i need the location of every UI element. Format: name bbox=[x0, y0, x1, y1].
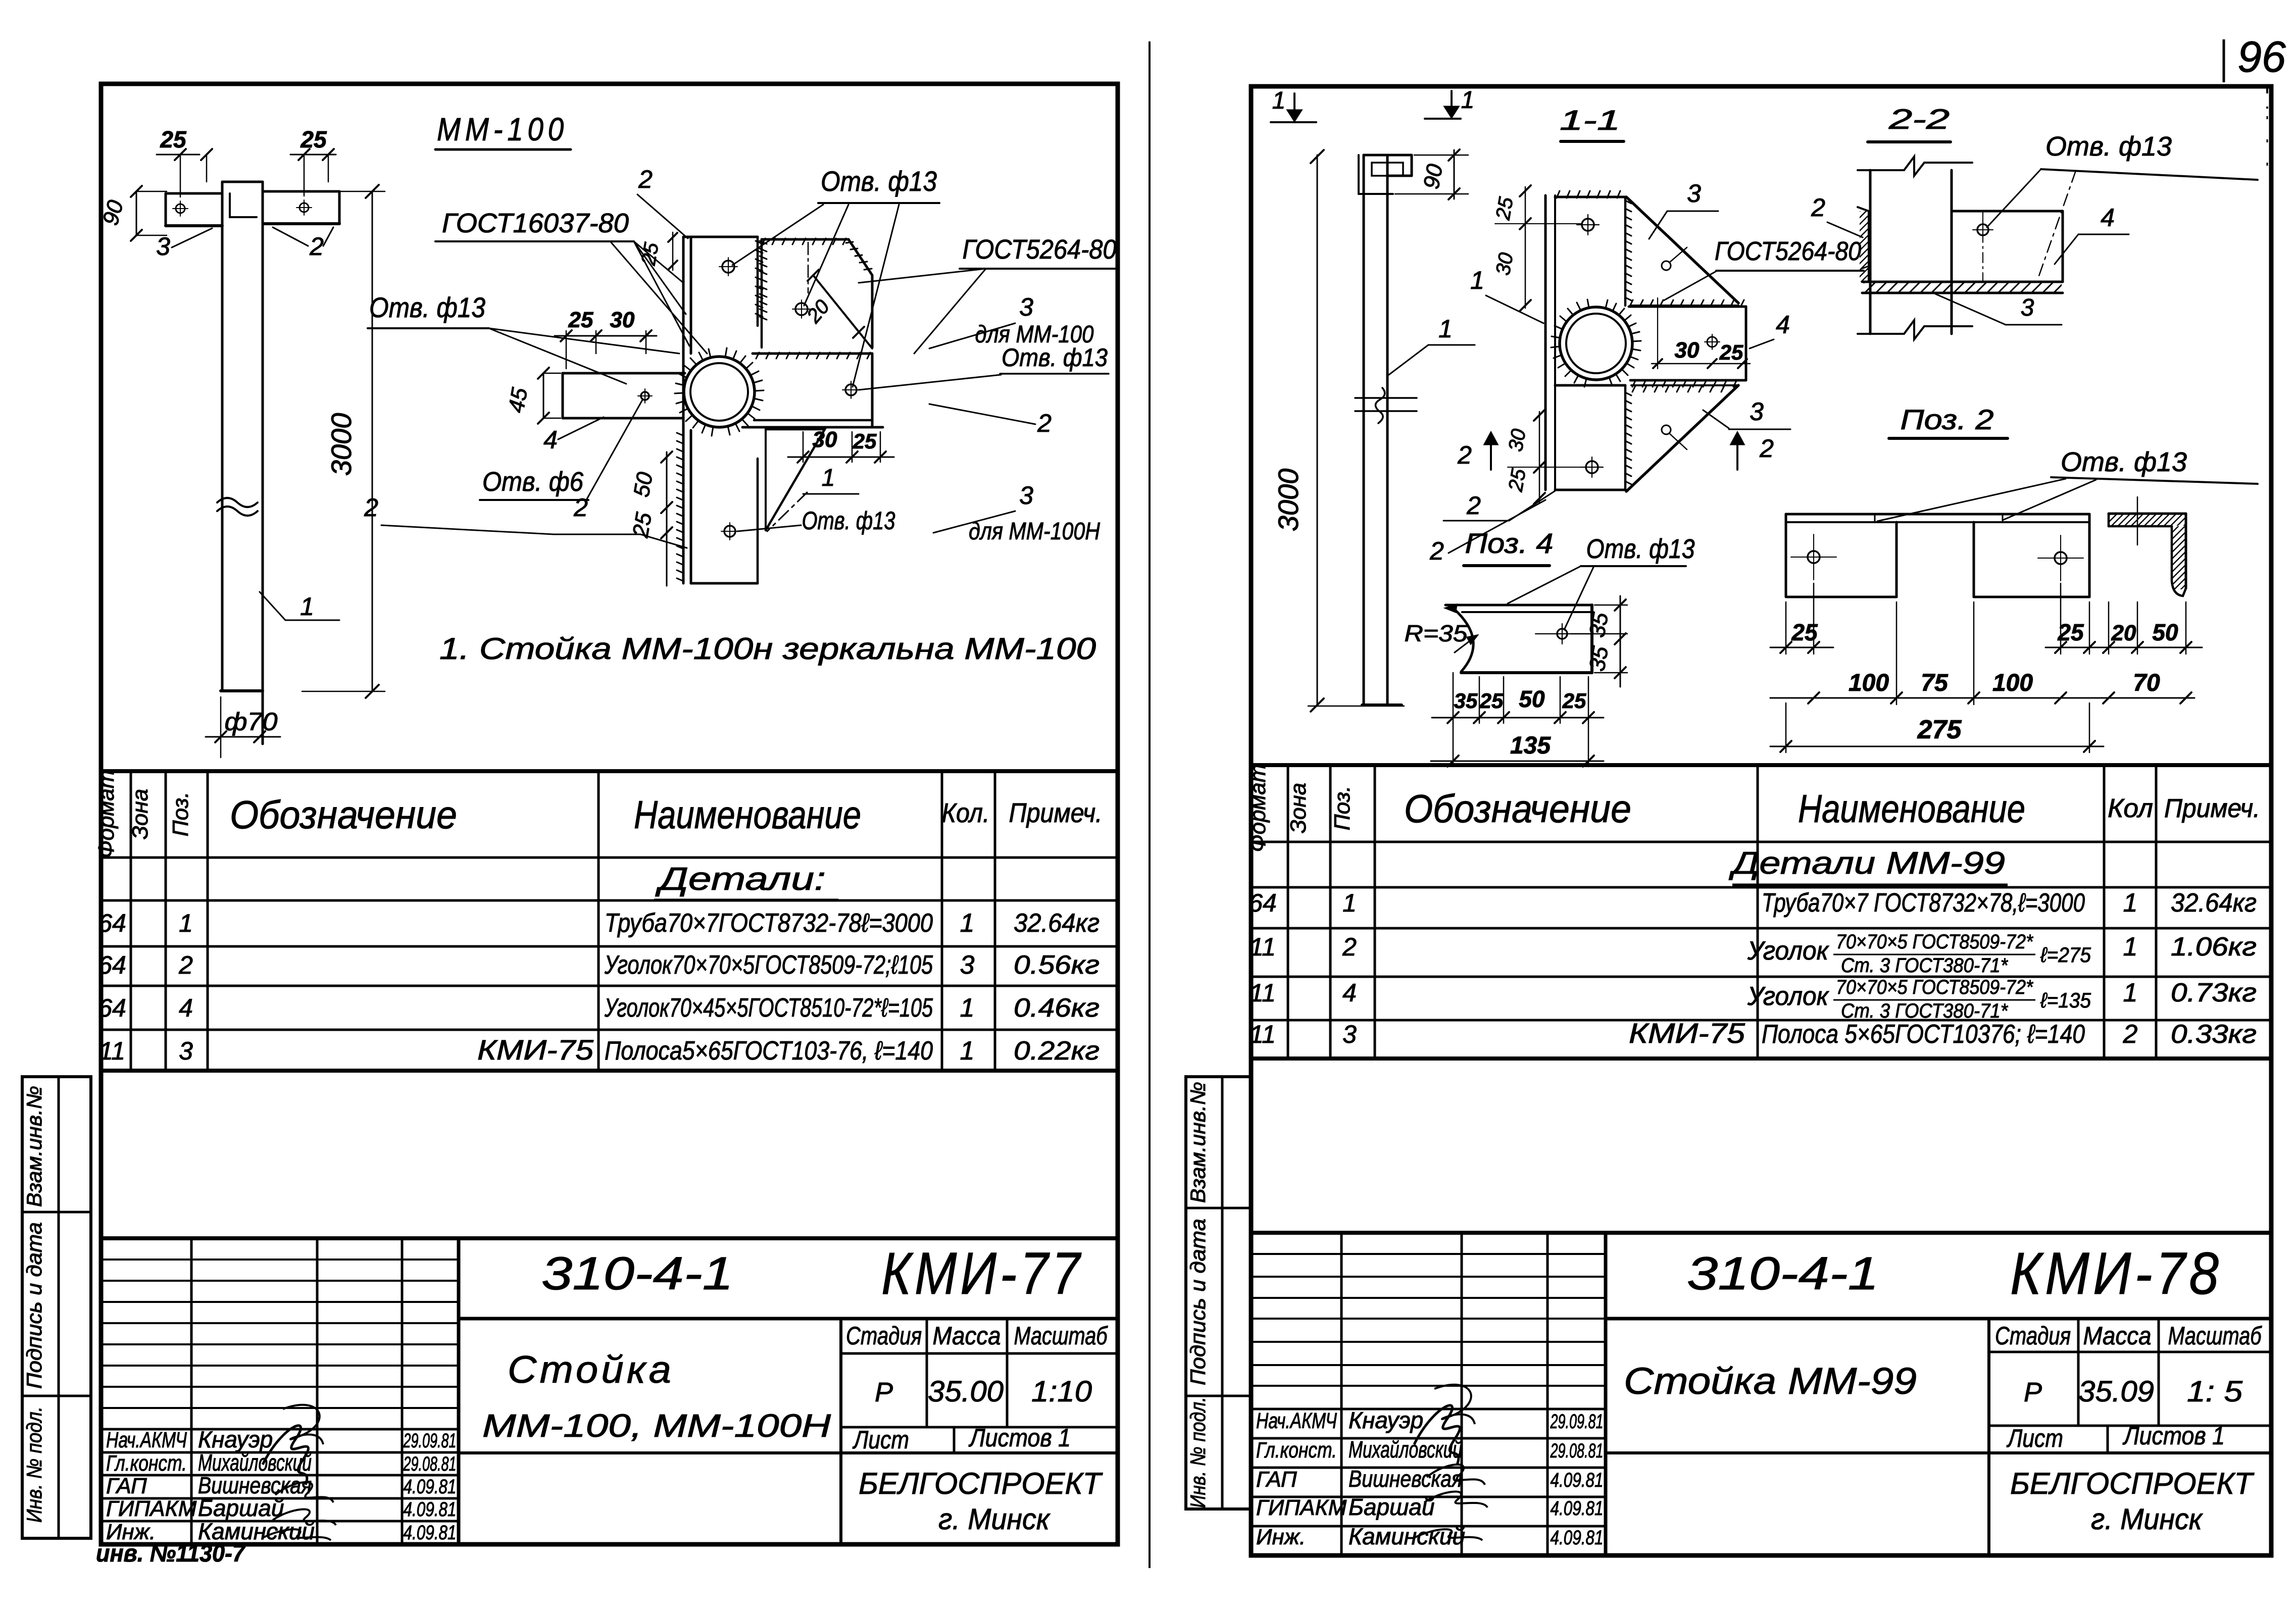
svg-text:1: 1 bbox=[1438, 315, 1453, 343]
svg-text:Стойка: Стойка bbox=[508, 1348, 674, 1391]
svg-text:50: 50 bbox=[2152, 619, 2178, 645]
svg-text:100: 100 bbox=[1849, 670, 1889, 696]
svg-text:Масса: Масса bbox=[2083, 1322, 2152, 1350]
svg-text:ГИПАКМ: ГИПАКМ bbox=[106, 1496, 197, 1521]
svg-text:Полоса5×65ГОСТ103-76, ℓ=140: Полоса5×65ГОСТ103-76, ℓ=140 bbox=[605, 1036, 933, 1066]
svg-text:3: 3 bbox=[1750, 397, 1764, 426]
svg-text:29.09.81: 29.09.81 bbox=[403, 1430, 457, 1452]
svg-text:135: 135 bbox=[1510, 732, 1551, 759]
svg-text:БЕЛГОСПРОЕКТ: БЕЛГОСПРОЕКТ bbox=[2010, 1467, 2255, 1500]
svg-text:Обозначение: Обозначение bbox=[230, 792, 457, 837]
svg-text:Уголок70×70×5ГОСТ8509-72;ℓ105: Уголок70×70×5ГОСТ8509-72;ℓ105 bbox=[604, 950, 933, 980]
svg-text:Труба70×7ГОСТ8732-78ℓ=3000: Труба70×7ГОСТ8732-78ℓ=3000 bbox=[605, 909, 933, 938]
svg-text:3: 3 bbox=[1019, 481, 1033, 510]
svg-text:25: 25 bbox=[300, 126, 327, 153]
svg-text:4.09.81: 4.09.81 bbox=[1551, 1527, 1604, 1549]
svg-text:25: 25 bbox=[1479, 689, 1504, 713]
svg-text:Инв. № подл.: Инв. № подл. bbox=[22, 1406, 46, 1523]
svg-text:Инж.: Инж. bbox=[1256, 1525, 1306, 1549]
svg-text:1.06кг: 1.06кг bbox=[2171, 932, 2257, 962]
svg-text:ℓ=275: ℓ=275 bbox=[2040, 943, 2091, 967]
svg-text:275: 275 bbox=[1917, 715, 1962, 744]
svg-text:2: 2 bbox=[1457, 441, 1472, 469]
svg-text:R=35: R=35 bbox=[1405, 620, 1468, 646]
svg-text:Подпись и дата: Подпись и дата bbox=[22, 1222, 46, 1389]
svg-text:25: 25 bbox=[568, 308, 593, 332]
svg-text:0.56кг: 0.56кг bbox=[1014, 950, 1100, 980]
svg-text:Отв. ф13: Отв. ф13 bbox=[1586, 534, 1695, 564]
svg-text:1:10: 1:10 bbox=[1031, 1375, 1092, 1408]
svg-text:30: 30 bbox=[1675, 338, 1700, 363]
svg-text:Лист: Лист bbox=[852, 1426, 909, 1454]
svg-text:50: 50 bbox=[1519, 686, 1545, 712]
svg-text:3: 3 bbox=[2021, 294, 2034, 321]
svg-text:25: 25 bbox=[1791, 619, 1818, 645]
svg-text:25: 25 bbox=[1562, 689, 1586, 713]
svg-text:4.09.81: 4.09.81 bbox=[1551, 1497, 1604, 1520]
svg-text:25: 25 bbox=[2057, 619, 2084, 645]
svg-text:1: 5: 1: 5 bbox=[2187, 1375, 2243, 1408]
svg-text:310-4-1: 310-4-1 bbox=[541, 1248, 733, 1299]
svg-text:35: 35 bbox=[1584, 611, 1613, 639]
svg-text:1-1: 1-1 bbox=[1560, 104, 1620, 136]
svg-text:Масштаб: Масштаб bbox=[2168, 1322, 2262, 1350]
svg-text:3000: 3000 bbox=[325, 413, 357, 476]
svg-text:2: 2 bbox=[638, 165, 653, 193]
svg-text:3: 3 bbox=[156, 232, 170, 261]
svg-text:64: 64 bbox=[98, 951, 126, 979]
svg-text:Стадия: Стадия bbox=[1995, 1322, 2071, 1350]
svg-text:Формат: Формат bbox=[1245, 764, 1270, 852]
svg-text:3000: 3000 bbox=[1272, 469, 1304, 532]
svg-text:2: 2 bbox=[364, 493, 378, 522]
svg-text:Ст. 3 ГОСТ380-71*: Ст. 3 ГОСТ380-71* bbox=[1841, 954, 2008, 977]
svg-text:Баршай: Баршай bbox=[1349, 1494, 1434, 1520]
svg-text:КМИ-75: КМИ-75 bbox=[1629, 1017, 1745, 1049]
svg-text:2: 2 bbox=[1759, 434, 1774, 463]
svg-text:ГОСТ16037-80: ГОСТ16037-80 bbox=[442, 208, 629, 238]
svg-text:45: 45 bbox=[504, 386, 532, 415]
svg-text:г. Минск: г. Минск bbox=[2091, 1503, 2203, 1536]
svg-text:90: 90 bbox=[1419, 162, 1448, 191]
svg-text:3: 3 bbox=[1019, 293, 1033, 321]
svg-text:Труба70×7 ГОСТ8732×78,ℓ=3000: Труба70×7 ГОСТ8732×78,ℓ=3000 bbox=[1762, 888, 2085, 918]
svg-text:310-4-1: 310-4-1 bbox=[1687, 1248, 1879, 1299]
svg-text:1: 1 bbox=[960, 1036, 975, 1066]
svg-text:Масса: Масса bbox=[933, 1322, 1001, 1350]
svg-text:Уголок: Уголок bbox=[1747, 982, 1829, 1011]
svg-text:25: 25 bbox=[853, 429, 877, 453]
svg-text:25: 25 bbox=[1491, 195, 1517, 222]
svg-text:Детали ММ-99: Детали ММ-99 bbox=[1729, 846, 2005, 881]
svg-text:100: 100 bbox=[1992, 670, 2033, 696]
svg-text:4: 4 bbox=[179, 994, 193, 1022]
svg-text:64: 64 bbox=[98, 994, 126, 1022]
svg-text:2: 2 bbox=[1429, 537, 1444, 565]
svg-text:35: 35 bbox=[1584, 644, 1613, 673]
svg-text:4.09.81: 4.09.81 bbox=[1551, 1469, 1604, 1491]
svg-text:Зона: Зона bbox=[128, 789, 153, 839]
svg-text:11: 11 bbox=[99, 1037, 125, 1065]
svg-text:30: 30 bbox=[610, 308, 635, 332]
svg-text:Отв. ф13: Отв. ф13 bbox=[821, 165, 937, 197]
svg-text:35.00: 35.00 bbox=[928, 1375, 1004, 1408]
svg-text:1: 1 bbox=[2123, 888, 2138, 918]
svg-text:2: 2 bbox=[1037, 409, 1052, 437]
svg-text:3: 3 bbox=[960, 950, 975, 980]
svg-text:2: 2 bbox=[1466, 491, 1481, 520]
svg-text:1: 1 bbox=[300, 592, 314, 621]
svg-text:4.09.81: 4.09.81 bbox=[404, 1476, 457, 1498]
svg-text:1: 1 bbox=[822, 465, 835, 491]
svg-text:4: 4 bbox=[1342, 979, 1357, 1007]
svg-text:Детали:: Детали: bbox=[655, 861, 826, 897]
svg-text:1: 1 bbox=[2123, 978, 2138, 1008]
svg-text:Листов 1: Листов 1 bbox=[2122, 1422, 2225, 1450]
svg-text:Лист: Лист bbox=[2006, 1424, 2063, 1452]
svg-text:1: 1 bbox=[1342, 889, 1357, 917]
svg-text:ф70: ф70 bbox=[225, 708, 278, 736]
svg-text:30: 30 bbox=[1492, 251, 1518, 277]
svg-text:64: 64 bbox=[98, 909, 126, 937]
svg-text:29.08.81: 29.08.81 bbox=[1550, 1440, 1604, 1462]
svg-text:Наименование: Наименование bbox=[634, 792, 861, 837]
svg-text:ГАП: ГАП bbox=[106, 1474, 147, 1498]
svg-text:32.64кг: 32.64кг bbox=[2171, 888, 2257, 918]
svg-text:Уголок: Уголок bbox=[1747, 936, 1829, 966]
svg-text:75: 75 bbox=[1921, 670, 1949, 696]
svg-text:Полоса 5×65ГОСТ10376; ℓ=140: Полоса 5×65ГОСТ10376; ℓ=140 bbox=[1762, 1020, 2085, 1049]
svg-text:ГОСТ5264-80: ГОСТ5264-80 bbox=[1715, 237, 1861, 266]
svg-text:Ст. 3 ГОСТ380-71*: Ст. 3 ГОСТ380-71* bbox=[1841, 1000, 2008, 1022]
svg-text:Примеч.: Примеч. bbox=[2164, 794, 2260, 823]
svg-text:Нач.АКМЧ: Нач.АКМЧ bbox=[1256, 1408, 1337, 1433]
svg-text:2: 2 bbox=[178, 951, 193, 979]
svg-text:Масштаб: Масштаб bbox=[1014, 1322, 1108, 1350]
svg-text:4.09.81: 4.09.81 bbox=[404, 1522, 457, 1544]
svg-text:2: 2 bbox=[2123, 1020, 2138, 1049]
svg-text:Михайловский: Михайловский bbox=[1349, 1436, 1462, 1463]
svg-text:2: 2 bbox=[309, 232, 324, 261]
svg-text:Отв. ф13: Отв. ф13 bbox=[2061, 447, 2187, 477]
svg-text:Стадия: Стадия bbox=[846, 1322, 922, 1350]
svg-text:0.33кг: 0.33кг bbox=[2171, 1020, 2257, 1049]
svg-text:ГАП: ГАП bbox=[1256, 1467, 1297, 1492]
svg-text:Отв. ф13: Отв. ф13 bbox=[802, 507, 895, 535]
svg-text:Отв. ф6: Отв. ф6 bbox=[482, 467, 584, 497]
svg-text:70×70×5 ГОСТ8509-72*: 70×70×5 ГОСТ8509-72* bbox=[1836, 931, 2033, 953]
svg-text:г. Минск: г. Минск bbox=[938, 1503, 1051, 1536]
svg-text:Кнауэр: Кнауэр bbox=[1349, 1407, 1423, 1433]
svg-text:Кол: Кол bbox=[2108, 794, 2153, 823]
svg-text:2: 2 bbox=[1811, 193, 1825, 222]
svg-text:96: 96 bbox=[2237, 33, 2286, 81]
svg-text:1: 1 bbox=[2123, 932, 2138, 962]
svg-text:1: 1 bbox=[179, 909, 193, 937]
svg-text:2: 2 bbox=[1342, 933, 1357, 961]
svg-text:Формат: Формат bbox=[94, 770, 119, 859]
svg-text:70: 70 bbox=[2133, 670, 2160, 696]
svg-text:29.09.81: 29.09.81 bbox=[1550, 1411, 1604, 1433]
svg-text:БЕЛГОСПРОЕКТ: БЕЛГОСПРОЕКТ bbox=[859, 1467, 1103, 1500]
svg-text:Гл.конст.: Гл.конст. bbox=[106, 1451, 187, 1476]
svg-text:11: 11 bbox=[1250, 979, 1276, 1007]
svg-text:Обозначение: Обозначение bbox=[1404, 786, 1631, 831]
svg-text:3: 3 bbox=[1687, 179, 1701, 208]
svg-text:4: 4 bbox=[543, 426, 558, 454]
svg-text:1: 1 bbox=[1470, 266, 1484, 294]
svg-text:Поз.: Поз. bbox=[168, 792, 193, 837]
svg-text:50: 50 bbox=[629, 470, 658, 499]
svg-text:Инв. № подл.: Инв. № подл. bbox=[1186, 1397, 1210, 1508]
svg-text:Поз. 2: Поз. 2 bbox=[1901, 404, 1994, 435]
svg-text:1: 1 bbox=[1272, 87, 1286, 114]
svg-text:2: 2 bbox=[573, 493, 588, 522]
svg-text:2-2: 2-2 bbox=[1888, 103, 1950, 135]
svg-text:ℓ=135: ℓ=135 bbox=[2040, 988, 2091, 1012]
svg-text:Зона: Зона bbox=[1286, 783, 1311, 833]
svg-text:Баршай: Баршай bbox=[198, 1495, 284, 1521]
svg-text:Р: Р bbox=[875, 1377, 893, 1407]
svg-text:64: 64 bbox=[1249, 889, 1277, 917]
svg-text:4: 4 bbox=[1776, 311, 1790, 339]
svg-text:25: 25 bbox=[160, 126, 187, 153]
svg-text:Гл.конст.: Гл.конст. bbox=[1256, 1438, 1337, 1463]
svg-text:0.73кг: 0.73кг bbox=[2171, 978, 2257, 1008]
svg-text:35.09: 35.09 bbox=[2078, 1375, 2154, 1408]
svg-text:1: 1 bbox=[960, 993, 975, 1023]
svg-text:для ММ-100Н: для ММ-100Н bbox=[969, 518, 1100, 545]
svg-text:4.09.81: 4.09.81 bbox=[404, 1498, 457, 1521]
svg-text:Подпись и дата: Подпись и дата bbox=[1186, 1219, 1210, 1385]
svg-text:1: 1 bbox=[960, 909, 975, 938]
svg-text:Уголок70×45×5ГОСТ8510-72*ℓ=105: Уголок70×45×5ГОСТ8510-72*ℓ=105 bbox=[604, 993, 933, 1023]
svg-text:25: 25 bbox=[1719, 340, 1743, 364]
svg-text:4: 4 bbox=[2101, 204, 2115, 232]
svg-text:25: 25 bbox=[1504, 467, 1530, 493]
svg-text:КМИ-77: КМИ-77 bbox=[881, 1240, 1083, 1307]
svg-text:3: 3 bbox=[1342, 1020, 1357, 1048]
svg-text:ММ-100: ММ-100 bbox=[437, 111, 568, 147]
svg-text:32.64кг: 32.64кг bbox=[1014, 909, 1100, 938]
svg-text:ММ-100, ММ-100Н: ММ-100, ММ-100Н bbox=[482, 1407, 831, 1444]
svg-text:0.22кг: 0.22кг bbox=[1014, 1036, 1100, 1066]
svg-text:ГИПАКМ: ГИПАКМ bbox=[1256, 1495, 1347, 1520]
svg-text:Вишневская: Вишневская bbox=[1349, 1466, 1462, 1492]
svg-text:Взам.инв.№: Взам.инв.№ bbox=[22, 1086, 46, 1207]
svg-text:0.46кг: 0.46кг bbox=[1014, 993, 1100, 1023]
svg-text:35: 35 bbox=[1454, 689, 1478, 713]
svg-text:Примеч.: Примеч. bbox=[1009, 798, 1103, 828]
svg-text:29.08.81: 29.08.81 bbox=[403, 1453, 457, 1475]
svg-text:ГОСТ5264-80: ГОСТ5264-80 bbox=[963, 234, 1117, 265]
svg-text:Листов 1: Листов 1 bbox=[968, 1424, 1071, 1452]
svg-text:Нач.АКМЧ: Нач.АКМЧ bbox=[106, 1428, 187, 1452]
svg-text:1. Стойка ММ-100н зеркальна ММ: 1. Стойка ММ-100н зеркальна ММ-100 bbox=[439, 632, 1096, 666]
svg-text:20: 20 bbox=[2111, 621, 2136, 645]
svg-text:1: 1 bbox=[1461, 87, 1475, 114]
svg-text:Кол.: Кол. bbox=[942, 798, 990, 828]
svg-text:Отв. ф13: Отв. ф13 bbox=[369, 291, 485, 323]
svg-text:30: 30 bbox=[813, 427, 837, 452]
svg-text:Отв. ф13: Отв. ф13 bbox=[2045, 131, 2172, 162]
svg-text:КМИ-78: КМИ-78 bbox=[2010, 1240, 2222, 1307]
svg-text:Поз. 4: Поз. 4 bbox=[1465, 527, 1554, 559]
svg-text:Взам.инв.№: Взам.инв.№ bbox=[1186, 1082, 1210, 1203]
svg-text:30: 30 bbox=[1505, 427, 1530, 453]
svg-text:инв. №1130-7: инв. №1130-7 bbox=[96, 1540, 246, 1567]
svg-text:Отв. ф13: Отв. ф13 bbox=[1002, 343, 1108, 372]
svg-text:11: 11 bbox=[1250, 1020, 1276, 1048]
svg-text:11: 11 bbox=[1250, 933, 1276, 961]
svg-text:Кнауэр: Кнауэр bbox=[198, 1426, 273, 1452]
svg-text:КМИ-75: КМИ-75 bbox=[477, 1034, 594, 1066]
svg-text:Наименование: Наименование bbox=[1798, 786, 2025, 831]
svg-text:Стойка ММ-99: Стойка ММ-99 bbox=[1624, 1360, 1917, 1402]
svg-text:3: 3 bbox=[179, 1037, 193, 1065]
svg-text:Поз.: Поз. bbox=[1330, 786, 1355, 831]
svg-text:70×70×5 ГОСТ8509-72*: 70×70×5 ГОСТ8509-72* bbox=[1836, 976, 2033, 998]
svg-text:Р: Р bbox=[2024, 1377, 2042, 1407]
